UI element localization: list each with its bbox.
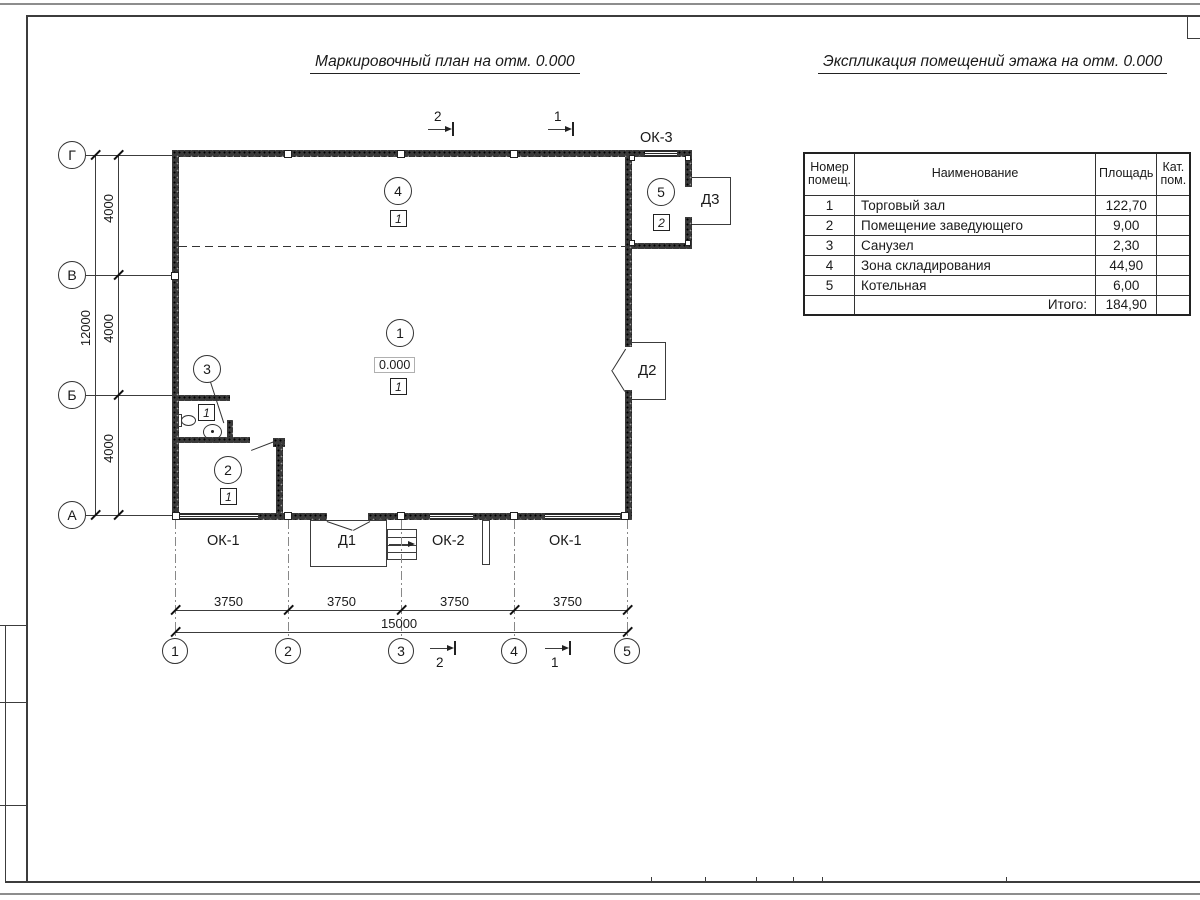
column-post: [510, 150, 518, 158]
section-mark-2-bottom-bar: [454, 641, 456, 655]
wall-right-upper: [625, 157, 632, 347]
axis-line-1: [175, 520, 176, 637]
titleblock-tick: [1006, 877, 1007, 881]
axis-line-b: [86, 395, 172, 396]
dim-line-left-inner: [118, 155, 119, 515]
room-category: [1157, 275, 1190, 295]
room-name: Санузел: [855, 235, 1096, 255]
section-mark-1-bottom-arrow: [562, 645, 569, 651]
window-ok1-right: [545, 513, 620, 520]
column-post: [629, 240, 635, 246]
margin-div1: [0, 625, 26, 626]
dim-3750-3: 3750: [440, 594, 469, 609]
zone-divider-dashed: [179, 246, 625, 247]
step-line: [388, 552, 416, 553]
door-label-d1: Д1: [338, 533, 356, 549]
room-area: 122,70: [1096, 195, 1157, 215]
axis-bubble-b: Б: [58, 381, 86, 409]
room-num: 5: [804, 275, 855, 295]
col-header-category: Кат. пом.: [1157, 153, 1190, 195]
wc-partition-top: [172, 395, 230, 401]
window-label-ok2: ОК-2: [432, 533, 465, 549]
entrance-ramp: [482, 520, 490, 565]
col-header-number: Номер помещ.: [804, 153, 855, 195]
axis-line-4: [514, 520, 515, 637]
wall-bottom-seg: [258, 513, 327, 520]
room-name: Торговый зал: [855, 195, 1096, 215]
dim-3750-4: 3750: [553, 594, 582, 609]
floor-type-2: 1: [220, 488, 237, 505]
wall-bottom-seg: [473, 513, 545, 520]
frame-corner-box-bottom: [1187, 38, 1200, 39]
window-ok1-left: [178, 513, 258, 520]
axis-bubble-3: 3: [388, 638, 414, 664]
room-category: [1157, 255, 1190, 275]
axis-bubble-4: 4: [501, 638, 527, 664]
section-mark-1-top-label: 1: [554, 109, 562, 124]
section-mark-1-bottom-bar: [569, 641, 571, 655]
section-mark-2-top-label: 2: [434, 109, 442, 124]
section-mark-2-bottom-arrow: [447, 645, 454, 651]
wall-left: [172, 150, 179, 520]
office-door-leaf: [251, 441, 275, 451]
window-ok2: [430, 513, 473, 520]
room-num: 1: [804, 195, 855, 215]
section-mark-2-top-arrow: [445, 126, 452, 132]
dim-line-bottom-outer: [175, 632, 627, 633]
boiler-wall-bottom: [632, 243, 692, 249]
entry-arrow-head: [408, 541, 415, 547]
dim-4000-2: 4000: [101, 314, 116, 343]
room-name: Котельная: [855, 275, 1096, 295]
dim-4000-1: 4000: [101, 194, 116, 223]
table-row: 4 Зона складирования 44,90: [804, 255, 1190, 275]
door-label-d3: Д3: [701, 191, 720, 208]
column-post: [629, 155, 635, 161]
frame-top: [26, 15, 1200, 17]
elevation-mark: 0.000: [374, 357, 415, 373]
window-ok3: [645, 150, 677, 157]
room-area: 2,30: [1096, 235, 1157, 255]
axis-bubble-1: 1: [162, 638, 188, 664]
room-category: [1157, 195, 1190, 215]
room-num: 4: [804, 255, 855, 275]
margin-vline: [5, 625, 6, 882]
column-post: [685, 155, 691, 161]
dim-3750-1: 3750: [214, 594, 243, 609]
room-area: 6,00: [1096, 275, 1157, 295]
room-marker-3: 3: [193, 355, 221, 383]
sheet-bottom-edge: [0, 893, 1200, 895]
total-value: 184,90: [1096, 295, 1157, 315]
explication-title: Экспликация помещений этажа на отм. 0.00…: [818, 53, 1167, 74]
section-mark-2-bottom-label: 2: [436, 655, 444, 670]
axis-bubble-v: В: [58, 261, 86, 289]
room-marker-5: 5: [647, 178, 675, 206]
door-label-d2: Д2: [638, 362, 657, 379]
entry-arrow-line: [389, 544, 410, 545]
table-total-row: Итого: 184,90: [804, 295, 1190, 315]
door-d2-leaf: [611, 370, 625, 392]
room-category: [1157, 235, 1190, 255]
axis-bubble-5: 5: [614, 638, 640, 664]
toilet-bowl: [181, 415, 196, 426]
room-name: Помещение заведующего: [855, 215, 1096, 235]
table-row: 5 Котельная 6,00: [804, 275, 1190, 295]
col-header-name: Наименование: [855, 153, 1096, 195]
office-wall-right: [276, 443, 283, 513]
column-post: [171, 272, 179, 280]
dim-12000: 12000: [78, 310, 93, 346]
table-row: 1 Торговый зал 122,70: [804, 195, 1190, 215]
axis-bubble-2: 2: [275, 638, 301, 664]
room-category: [1157, 215, 1190, 235]
step-line: [388, 537, 416, 538]
wall-top: [172, 150, 692, 157]
section-mark-1-top-arrow: [565, 126, 572, 132]
explication-table: Номер помещ. Наименование Площадь Кат. п…: [803, 152, 1191, 316]
total-label: Итого:: [855, 295, 1096, 315]
column-post: [172, 512, 180, 520]
table-row: 2 Помещение заведующего 9,00: [804, 215, 1190, 235]
axis-line-v: [86, 275, 172, 276]
column-post: [510, 512, 518, 520]
plan-title: Маркировочный план на отм. 0.000: [310, 53, 580, 74]
margin-div3: [0, 805, 26, 806]
door-d2-leaf: [612, 349, 626, 371]
room-num: 3: [804, 235, 855, 255]
column-post: [397, 512, 405, 520]
titleblock-tick: [822, 877, 823, 881]
dim-4000-3: 4000: [101, 434, 116, 463]
window-label-ok3: ОК-3: [640, 130, 673, 146]
titleblock-tick: [793, 877, 794, 881]
room-marker-1: 1: [386, 319, 414, 347]
section-mark-2-top-bar: [452, 122, 454, 136]
column-post: [685, 240, 691, 246]
margin-div2: [0, 702, 26, 703]
axis-bubble-g: Г: [58, 141, 86, 169]
floor-type-3: 1: [198, 404, 215, 421]
frame-left: [26, 15, 28, 882]
window-label-ok1-left: ОК-1: [207, 533, 240, 549]
floor-type-5: 2: [653, 214, 670, 231]
titleblock-tick: [756, 877, 757, 881]
axis-line-2: [288, 520, 289, 637]
frame-bottom: [5, 881, 1200, 883]
titleblock-tick: [705, 877, 706, 881]
col-header-area: Площадь: [1096, 153, 1157, 195]
dim-3750-2: 3750: [327, 594, 356, 609]
column-post: [621, 512, 629, 520]
titleblock-tick: [651, 877, 652, 881]
floor-type-1: 1: [390, 378, 407, 395]
axis-line-a: [86, 515, 172, 516]
section-mark-1-top-bar: [572, 122, 574, 136]
room-marker-4: 4: [384, 177, 412, 205]
column-post: [284, 150, 292, 158]
column-post: [397, 150, 405, 158]
floor-type-4: 1: [390, 210, 407, 227]
section-mark-1-bottom-label: 1: [551, 655, 559, 670]
room-num: 2: [804, 215, 855, 235]
sink-drain: [211, 430, 214, 433]
dim-15000: 15000: [381, 616, 417, 631]
axis-bubble-a: А: [58, 501, 86, 529]
sheet-top-edge: [0, 3, 1200, 5]
room-marker-2: 2: [214, 456, 242, 484]
drawing-sheet: Маркировочный план на отм. 0.000 Эксплик…: [0, 0, 1200, 900]
column-post: [284, 512, 292, 520]
room-area: 9,00: [1096, 215, 1157, 235]
window-label-ok1-right: ОК-1: [549, 533, 582, 549]
table-row: 3 Санузел 2,30: [804, 235, 1190, 255]
axis-line-5: [627, 520, 628, 637]
axis-line-g: [86, 155, 172, 156]
wall-right-lower: [625, 390, 632, 513]
room-area: 44,90: [1096, 255, 1157, 275]
frame-corner-box-left: [1187, 15, 1188, 38]
room-name: Зона складирования: [855, 255, 1096, 275]
boiler-wall-right-upper: [685, 157, 692, 187]
dim-line-left-outer: [95, 155, 96, 515]
